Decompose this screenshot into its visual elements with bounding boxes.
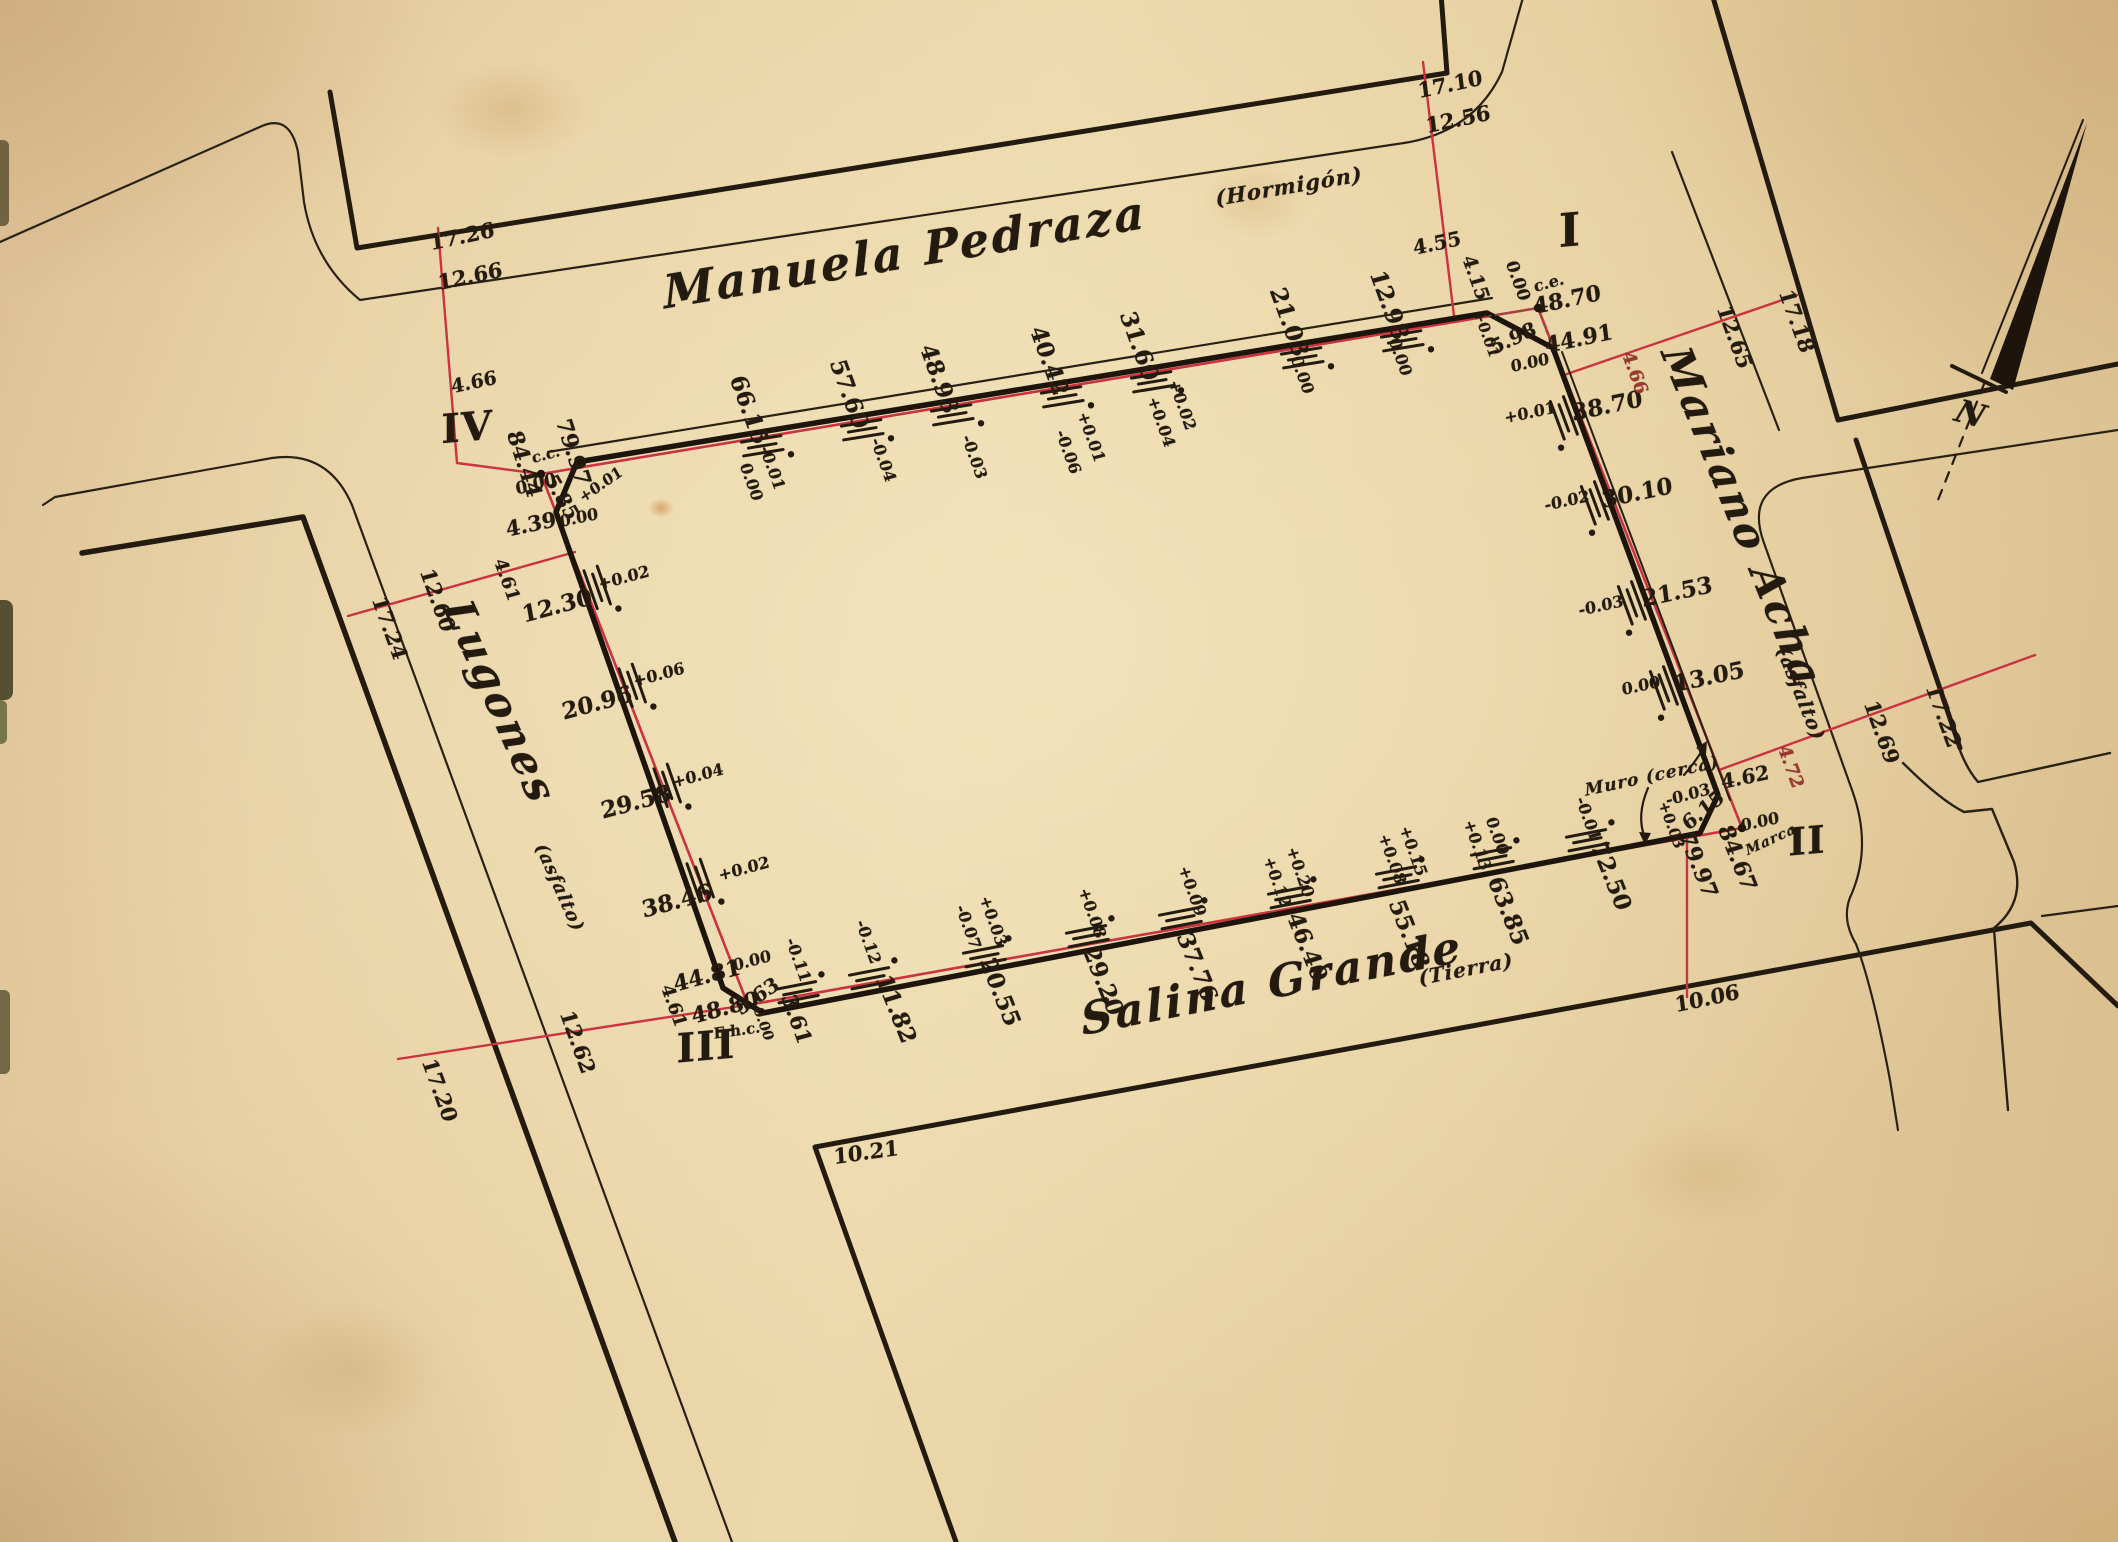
salina-grande-south-curb-east — [2042, 906, 2118, 916]
block-east-south-edge — [1958, 745, 2110, 782]
corner-marker-4: IV — [441, 406, 493, 451]
corner-marker-1: I — [1559, 206, 1581, 254]
mariano-acha-east-curb — [1759, 430, 2118, 1130]
reference-dots — [537, 304, 1746, 1009]
muro-arrow-down — [1641, 788, 1648, 838]
north-arrow — [1938, 120, 2087, 500]
manuela-pedraza-south-curb — [548, 298, 1492, 452]
block-nw-building-line — [330, 0, 1447, 248]
map-canvas: Manuela Pedraza(Hormigón)Mariano Acha(as… — [0, 0, 2118, 1542]
